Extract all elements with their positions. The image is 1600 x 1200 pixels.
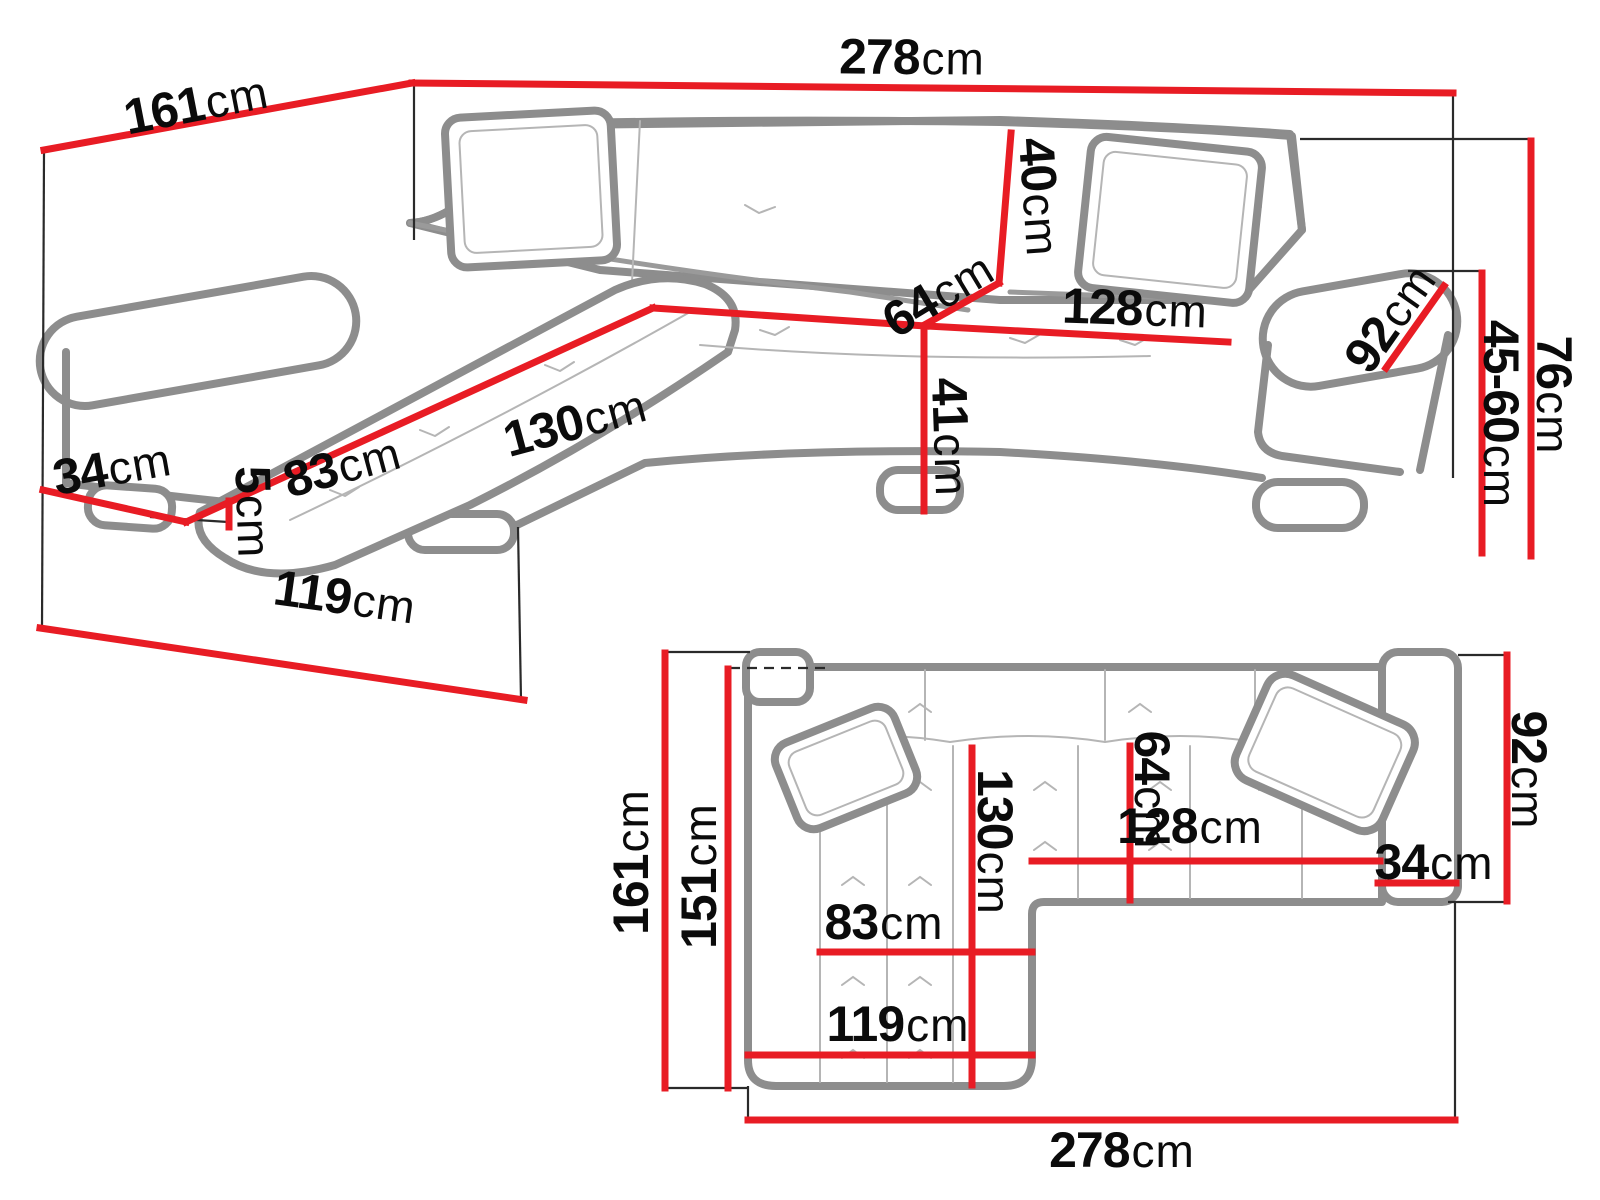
dim-label-chaise-width-plan: 119cm [827, 999, 970, 1049]
left-pillow [444, 110, 618, 268]
dim-label-total-width-plan: 278cm [1049, 1125, 1195, 1175]
dim-label-total-height: 76cm [1529, 336, 1579, 455]
dim-label-seat-width-plan: 128cm [1117, 801, 1263, 851]
dim-line-119 [40, 628, 524, 700]
dim-label-armrest-width-plan: 34cm [1375, 837, 1494, 887]
diagram-artwork [0, 0, 1600, 1200]
dim-line-278 [412, 83, 1453, 93]
dim-label-backrest-height: 40cm [1011, 136, 1069, 258]
dim-label-total-depth-plan: 161cm [606, 789, 656, 935]
dim-label-chaise-seat-width-plan: 83cm [825, 897, 944, 947]
dim-label-chaise-seat-length-plan: 130cm [970, 769, 1020, 915]
dim-label-seat-width: 128cm [1061, 280, 1208, 335]
dim-label-leg-height: 5cm [227, 465, 280, 559]
dim-label-inner-depth-plan: 151cm [674, 803, 724, 949]
plan-left-armrest-corner [746, 652, 810, 702]
dim-label-total-width: 278cm [839, 31, 985, 82]
dim-label-seat-front-height: 41cm [924, 377, 978, 498]
sofa-dimensions-diagram: 278cm 161cm 34cm 83cm 130cm 64cm 40cm 12… [0, 0, 1600, 1200]
dim-label-seat-height-range: 45-60cm [1476, 320, 1526, 508]
dim-label-sofa-depth-plan: 92cm [1504, 711, 1554, 830]
sofa-leg [1256, 482, 1364, 528]
left-armrest [33, 269, 364, 413]
